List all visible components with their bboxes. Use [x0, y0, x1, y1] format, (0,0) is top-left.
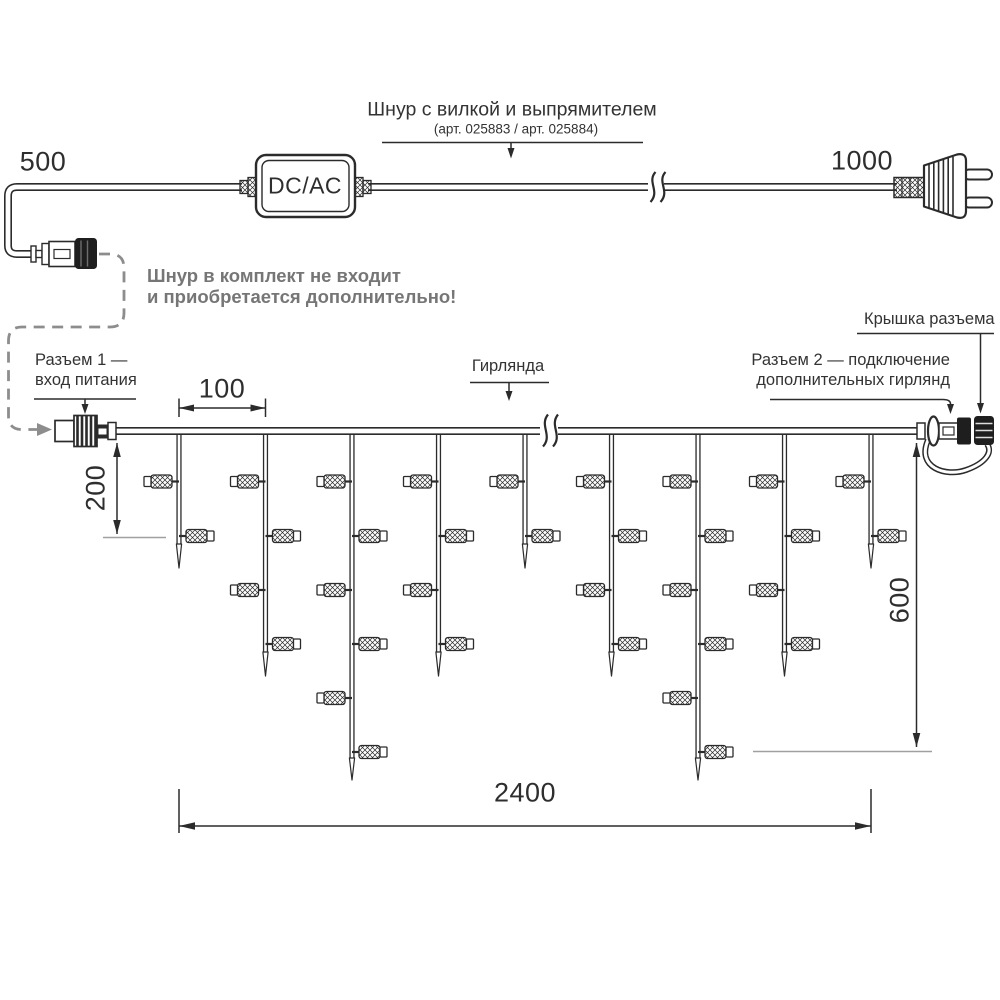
led-bulb — [179, 530, 214, 543]
icicle-drop — [836, 434, 906, 569]
led-bulb — [266, 530, 301, 543]
icicle-drop — [404, 434, 474, 677]
dim-500-label: 500 — [20, 147, 67, 178]
not-included-dashed-path — [9, 254, 125, 436]
connector2-label-line1: Разъем 2 — подключение — [751, 351, 950, 371]
led-bulb — [750, 475, 785, 488]
led-bulb — [612, 638, 647, 651]
cord-title: Шнур с вилкой и выпрямителем — [367, 99, 656, 122]
dim-1000-label: 1000 — [831, 146, 893, 177]
dc-ac-label: DC/AC — [268, 173, 342, 200]
led-bulb — [836, 475, 871, 488]
led-bulb — [231, 475, 266, 488]
led-bulb — [317, 475, 352, 488]
icicle-drop — [490, 434, 560, 569]
led-bulb — [439, 530, 474, 543]
led-bulb — [577, 475, 612, 488]
power-cord — [8, 172, 897, 254]
icicle-drop — [144, 434, 214, 569]
dim-100-label: 100 — [199, 374, 246, 405]
led-bulb — [317, 692, 352, 705]
connector1-label: Разъем 1 — вход питания — [35, 351, 137, 390]
led-bulb — [698, 638, 733, 651]
wire-break-icon — [543, 415, 558, 447]
led-bulb — [144, 475, 179, 488]
led-bulb — [663, 692, 698, 705]
led-bulb — [231, 584, 266, 597]
led-bulb — [785, 638, 820, 651]
dim-600-label: 600 — [885, 577, 916, 624]
connector1-icon — [55, 416, 116, 447]
led-bulb — [663, 584, 698, 597]
led-bulb — [698, 530, 733, 543]
led-bulb — [439, 638, 474, 651]
cord-article: (арт. 025883 / арт. 025884) — [434, 122, 598, 137]
dim-200-label: 200 — [81, 465, 112, 512]
led-bulb — [490, 475, 525, 488]
connector2-label: Разъем 2 — подключение дополнительных ги… — [751, 351, 950, 390]
icicle-drop — [663, 434, 733, 781]
icicle-drop — [231, 434, 301, 677]
note-line1: Шнур в комплект не входит — [147, 265, 456, 286]
led-bulb — [404, 475, 439, 488]
led-bulb — [785, 530, 820, 543]
led-bulb — [577, 584, 612, 597]
led-bulb — [317, 584, 352, 597]
led-bulb — [404, 584, 439, 597]
led-bulb — [750, 584, 785, 597]
led-bulb — [266, 638, 301, 651]
icicle-drop — [317, 434, 387, 781]
led-bulb — [663, 475, 698, 488]
led-bulb — [352, 638, 387, 651]
gray-arrow-icon — [37, 423, 52, 436]
icicle-drop — [750, 434, 820, 677]
cap-label: Крышка разъема — [864, 310, 995, 330]
wire-break-icon — [651, 172, 666, 202]
led-bulb — [352, 530, 387, 543]
connector2-label-line2: дополнительных гирлянд — [751, 371, 950, 391]
led-bulb — [698, 746, 733, 759]
connector1-label-line1: Разъем 1 — — [35, 351, 137, 371]
connector1-label-line2: вход питания — [35, 371, 137, 391]
led-bulb — [352, 746, 387, 759]
connector-cap-icon — [974, 416, 994, 445]
dim-2400-label: 2400 — [494, 778, 556, 809]
led-bulb — [871, 530, 906, 543]
dimension-200 — [103, 443, 166, 538]
cord-connector-icon — [31, 238, 97, 269]
led-bulb — [525, 530, 560, 543]
led-bulb — [612, 530, 647, 543]
garland-label: Гирлянда — [472, 357, 544, 377]
note-line2: и приобретается дополнительно! — [147, 286, 456, 307]
mains-plug-icon — [894, 154, 992, 218]
not-included-note: Шнур в комплект не входит и приобретаетс… — [147, 265, 456, 307]
connector2-icon — [917, 416, 994, 472]
garland-drops — [144, 434, 906, 781]
icicle-garland-diagram: 500 1000 Шнур с вилкой и выпрямителем (а… — [0, 0, 1000, 1000]
icicle-drop — [577, 434, 647, 677]
garland-wire — [113, 415, 923, 447]
